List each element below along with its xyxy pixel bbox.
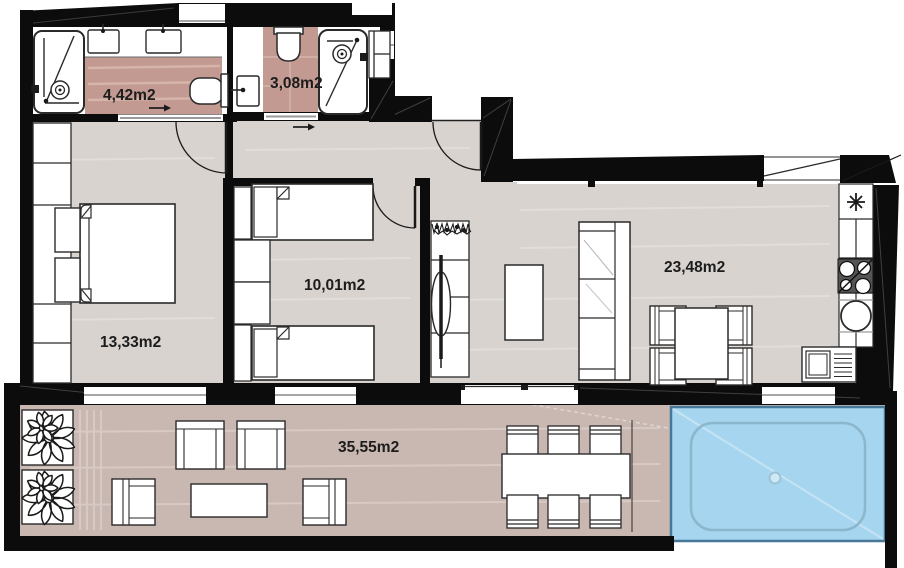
svg-text:13,33m2: 13,33m2 bbox=[100, 334, 161, 351]
svg-text:23,48m2: 23,48m2 bbox=[664, 259, 725, 276]
svg-text:10,01m2: 10,01m2 bbox=[304, 277, 365, 294]
svg-text:4,42m2: 4,42m2 bbox=[103, 87, 156, 104]
svg-text:3,08m2: 3,08m2 bbox=[270, 75, 323, 92]
svg-text:35,55m2: 35,55m2 bbox=[338, 439, 399, 456]
